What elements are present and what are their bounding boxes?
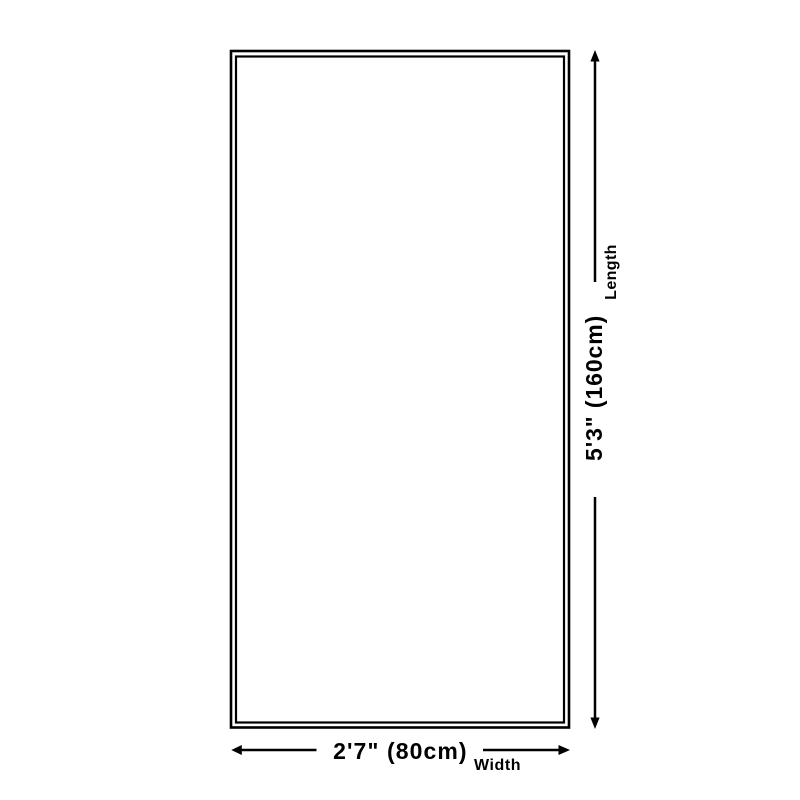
svg-text:Width: Width xyxy=(474,757,521,774)
svg-text:2'7" (80cm): 2'7" (80cm) xyxy=(333,738,468,764)
svg-text:5'3" (160cm): 5'3" (160cm) xyxy=(581,315,607,461)
svg-text:Length: Length xyxy=(603,244,620,300)
